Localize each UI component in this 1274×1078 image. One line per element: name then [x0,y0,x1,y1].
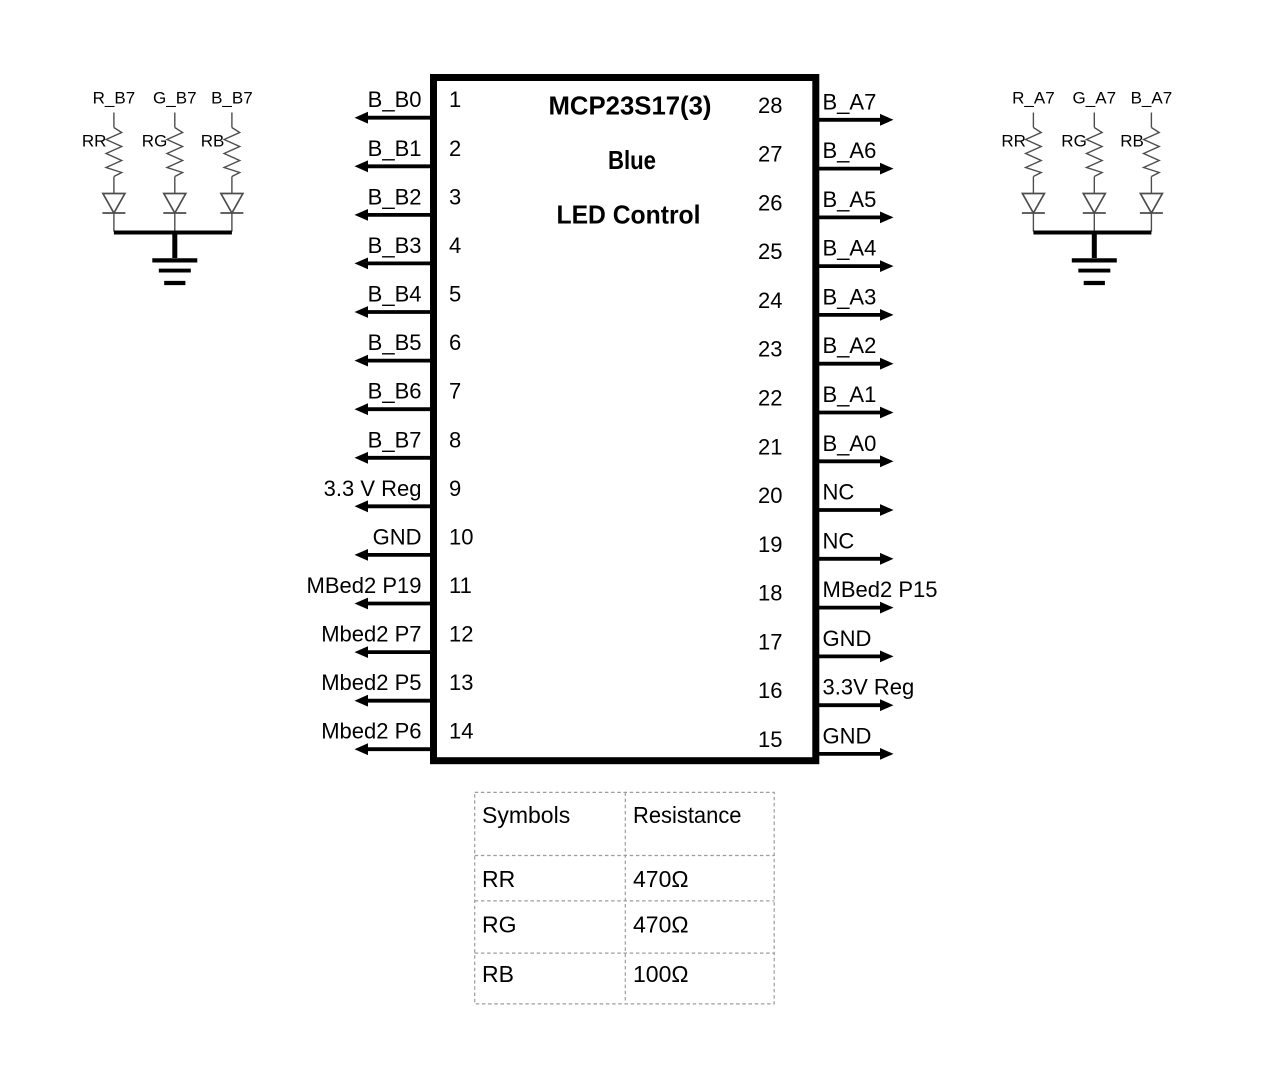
svg-text:17: 17 [758,629,782,654]
svg-text:28: 28 [758,93,782,118]
svg-text:Blue: Blue [608,145,656,175]
svg-text:RB: RB [1120,132,1144,151]
svg-text:2: 2 [449,136,461,161]
svg-text:15: 15 [758,727,782,752]
svg-text:7: 7 [449,379,461,404]
svg-text:14: 14 [449,719,473,744]
svg-text:RR: RR [482,866,515,892]
svg-text:RR: RR [1001,132,1026,151]
svg-text:RB: RB [201,132,225,151]
svg-text:B_B3: B_B3 [368,233,422,258]
svg-text:26: 26 [758,190,782,215]
svg-text:MBed2 P19: MBed2 P19 [307,573,422,598]
svg-text:10: 10 [449,524,473,549]
svg-text:B_A7: B_A7 [1131,89,1173,108]
svg-text:13: 13 [449,670,473,695]
svg-text:3.3 V Reg: 3.3 V Reg [324,476,422,501]
svg-text:B_B0: B_B0 [368,87,422,112]
svg-text:NC: NC [823,528,855,553]
svg-text:B_B4: B_B4 [368,282,422,307]
svg-text:G_A7: G_A7 [1073,89,1116,108]
svg-text:27: 27 [758,142,782,167]
svg-text:B_A1: B_A1 [823,382,877,407]
svg-text:16: 16 [758,678,782,703]
svg-text:21: 21 [758,434,782,459]
svg-text:R_A7: R_A7 [1012,89,1055,108]
svg-text:B_A2: B_A2 [823,333,877,358]
svg-text:LED Control: LED Control [557,200,701,230]
svg-text:5: 5 [449,282,461,307]
svg-text:MBed2 P15: MBed2 P15 [823,577,938,602]
svg-text:GND: GND [823,626,872,651]
svg-text:25: 25 [758,239,782,264]
svg-text:3.3V Reg: 3.3V Reg [823,675,915,700]
svg-text:23: 23 [758,337,782,362]
svg-text:B_B7: B_B7 [368,427,422,452]
svg-text:8: 8 [449,427,461,452]
svg-text:RB: RB [482,961,514,987]
svg-text:B_B6: B_B6 [368,379,422,404]
svg-text:B_B7: B_B7 [211,89,253,108]
svg-text:B_A4: B_A4 [823,236,877,261]
svg-text:GND: GND [823,723,872,748]
svg-text:1: 1 [449,87,461,112]
svg-text:GND: GND [373,524,422,549]
svg-text:470Ω: 470Ω [633,866,689,892]
svg-text:B_A7: B_A7 [823,89,877,114]
svg-text:4: 4 [449,233,461,258]
svg-text:B_A6: B_A6 [823,138,877,163]
svg-text:470Ω: 470Ω [633,912,689,938]
svg-text:3: 3 [449,184,461,209]
svg-text:NC: NC [823,480,855,505]
svg-text:MCP23S17(3): MCP23S17(3) [549,91,712,121]
svg-text:19: 19 [758,532,782,557]
svg-text:Mbed2 P5: Mbed2 P5 [321,670,421,695]
svg-text:B_A3: B_A3 [823,284,877,309]
svg-text:B_B1: B_B1 [368,136,422,161]
svg-text:12: 12 [449,622,473,647]
svg-text:22: 22 [758,386,782,411]
svg-text:6: 6 [449,330,461,355]
svg-text:RG: RG [1061,132,1087,151]
svg-text:B_A5: B_A5 [823,187,877,212]
svg-text:Symbols: Symbols [482,802,570,828]
svg-text:Resistance: Resistance [633,802,742,828]
svg-text:Mbed2 P6: Mbed2 P6 [321,719,421,744]
svg-text:B_A0: B_A0 [823,431,877,456]
svg-text:18: 18 [758,581,782,606]
svg-text:G_B7: G_B7 [153,89,196,108]
svg-text:RG: RG [482,912,517,938]
svg-text:11: 11 [449,573,472,598]
svg-text:24: 24 [758,288,782,313]
svg-text:9: 9 [449,476,461,501]
svg-text:RG: RG [142,132,168,151]
svg-text:R_B7: R_B7 [93,89,136,108]
svg-text:20: 20 [758,483,782,508]
svg-text:Mbed2 P7: Mbed2 P7 [321,622,421,647]
svg-text:B_B5: B_B5 [368,330,422,355]
svg-text:100Ω: 100Ω [633,961,689,987]
svg-text:B_B2: B_B2 [368,184,422,209]
svg-text:RR: RR [82,132,107,151]
